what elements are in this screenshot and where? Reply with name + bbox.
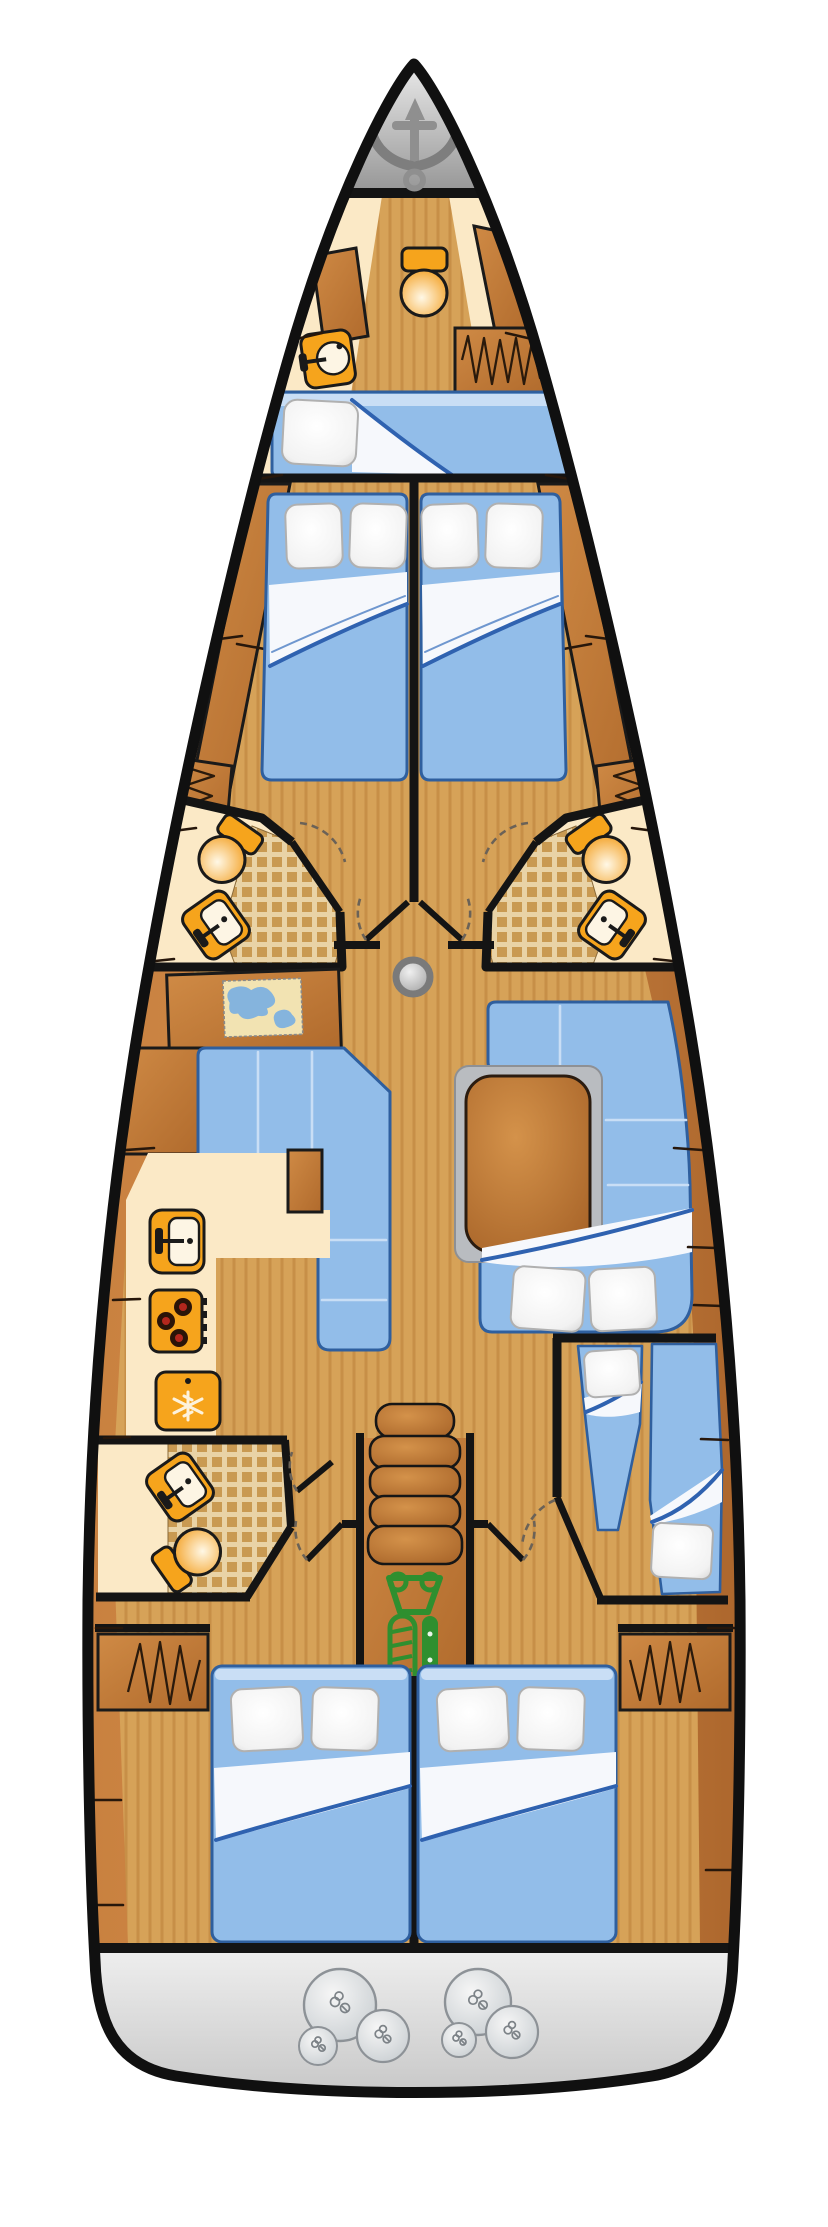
fridge-icon <box>156 1372 220 1430</box>
pillow <box>651 1522 714 1579</box>
pillow <box>584 1348 641 1398</box>
pillow <box>436 1686 509 1752</box>
transom-deck <box>80 1950 748 2125</box>
forward-bed-port <box>262 494 407 780</box>
pillow <box>421 503 479 569</box>
pillow <box>588 1266 657 1331</box>
pillow <box>517 1687 585 1751</box>
forward-bed-starboard <box>421 494 566 780</box>
companionway-steps <box>368 1404 462 1564</box>
salon-table <box>466 1076 590 1252</box>
galley-wood-strip <box>288 1150 322 1212</box>
skipper-berth-outboard <box>650 1344 722 1594</box>
yacht-deck-plan <box>0 0 828 2227</box>
crew-toilet-icon <box>401 248 447 316</box>
transom <box>80 1948 748 2125</box>
deck-plan-svg <box>0 0 828 2227</box>
crew-berth <box>272 392 588 477</box>
pillow <box>311 1687 379 1751</box>
pillow <box>349 503 407 569</box>
mast-icon <box>396 960 430 994</box>
pillow <box>510 1266 586 1333</box>
stove-icon <box>150 1290 207 1352</box>
aft-bed-port <box>212 1666 410 1942</box>
pillow <box>230 1686 303 1752</box>
aft-bed-starboard <box>418 1666 616 1942</box>
hull-interior <box>60 40 770 2125</box>
companionway <box>358 1404 472 1704</box>
pillow <box>485 503 543 569</box>
galley-sink-icon <box>150 1210 204 1273</box>
salon-starboard <box>455 1002 692 1332</box>
pillow <box>285 503 343 569</box>
crew-pillow <box>281 399 358 467</box>
navigation-station <box>167 969 342 1057</box>
